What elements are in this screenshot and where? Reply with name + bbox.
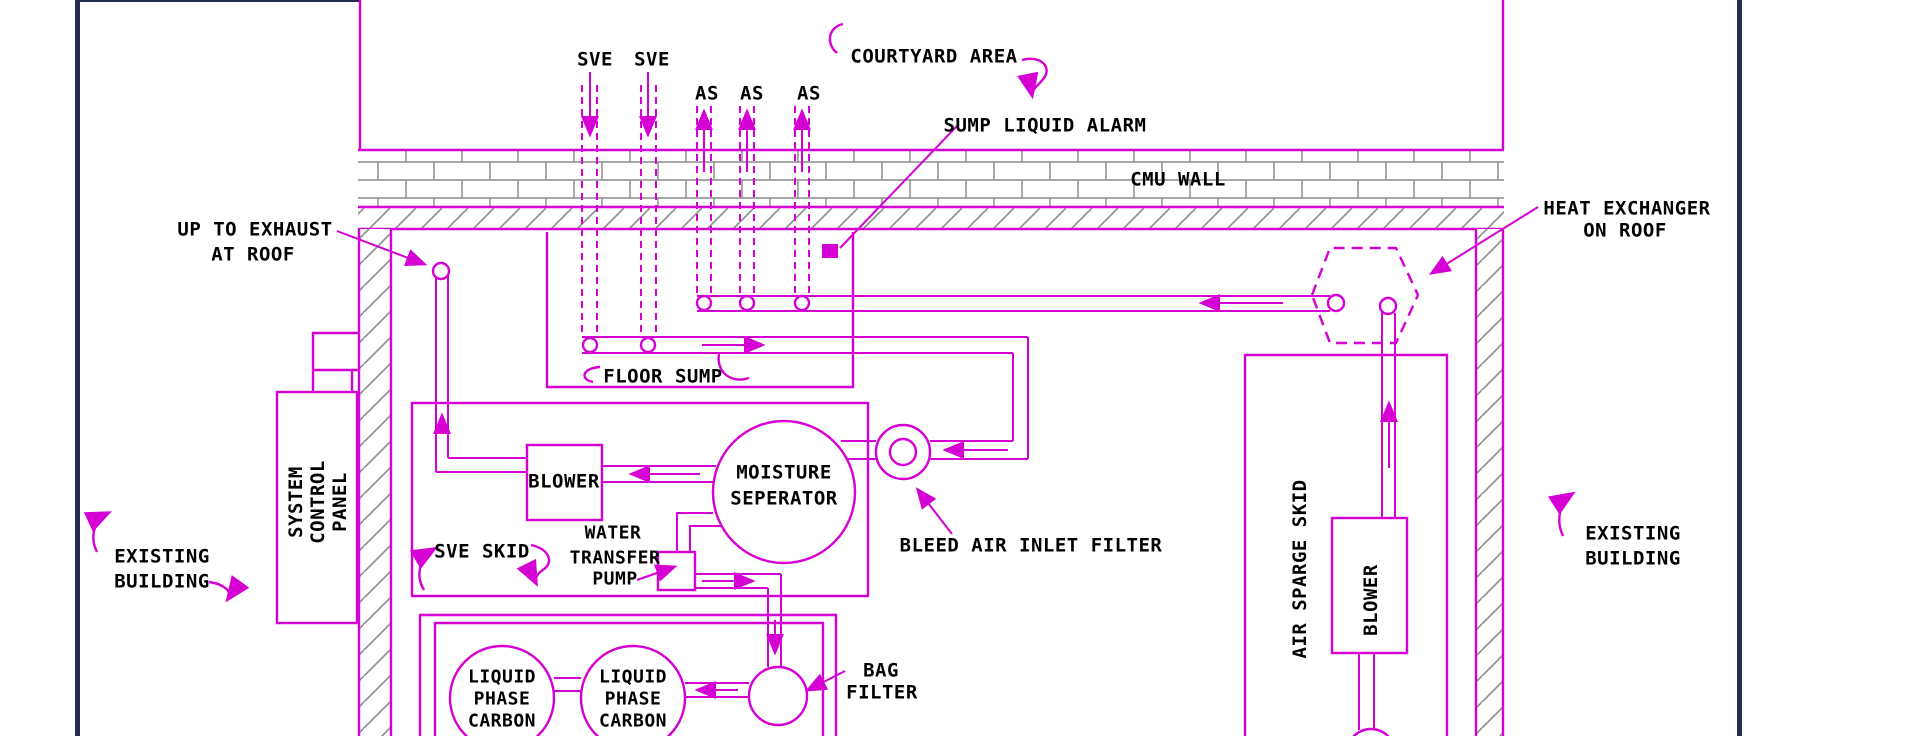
as-port-3 [795,296,809,310]
label-blower-left: BLOWER [528,472,600,493]
squiggle-existing-left [93,513,108,552]
sve-sump-port-1 [583,338,597,352]
label-up-exhaust-1: UP TO EXHAUST [177,220,332,241]
squiggle-sve-skid-right [531,545,549,583]
cmu-brick-band [358,151,1504,206]
label-sump-liquid-alarm: SUMP LIQUID ALARM [944,116,1147,137]
label-existing-building-left-2: BUILDING [114,572,210,593]
label-transfer: TRANSFER [570,548,661,569]
label-carbon-right-3: CARBON [599,711,667,732]
right-page-border [1737,0,1742,736]
label-pump: PUMP [592,569,637,590]
as-skid-lower-unit [1347,729,1395,736]
label-water: WATER [585,523,642,544]
label-as-well-1: AS [695,84,719,105]
bag-filter-circle [749,667,807,725]
as-port-2 [740,296,754,310]
label-existing-building-left-1: EXISTING [114,547,210,568]
bleed-air-filter-inner [890,439,916,465]
label-system-control-panel: SYSTEMCONTROLPANEL [285,460,351,544]
label-air-sparge-skid: AIR SPARGE SKID [1289,479,1311,658]
label-sve-well-2: SVE [634,50,670,71]
squiggle-floor-sump-left [585,367,600,382]
label-sve-skid: SVE SKID [434,542,530,563]
label-existing-building-right-2: BUILDING [1585,549,1681,570]
label-sve-well-1: SVE [577,50,613,71]
right-wall-hatch [1477,229,1502,736]
label-carbon-left-3: CARBON [468,711,536,732]
label-system: SYSTEM [285,466,307,538]
bleed-filter-leader [918,490,952,534]
label-heat-exchanger-2: ON ROOF [1583,221,1667,242]
label-bleed-air-inlet-filter: BLEED AIR INLET FILTER [900,536,1163,557]
label-panel: PANEL [329,472,351,532]
equipment [277,232,1447,736]
label-control: CONTROL [307,460,329,544]
pump-discharge-pipe [695,574,781,667]
label-blower-right: BLOWER [1360,564,1382,636]
left-page-border [75,0,80,736]
as-port-1 [697,296,711,310]
label-courtyard-area: COURTYARD AREA [850,47,1017,68]
squiggle-courtyard-left [830,24,843,53]
label-carbon-left-2: PHASE [474,689,531,710]
label-up-exhaust-2: AT ROOF [211,245,295,266]
exhaust-pipe [436,271,527,472]
label-moisture-1: MOISTURE [736,463,832,484]
pump-suction-pipe [677,513,722,552]
squiggle-existing-right [1559,494,1572,536]
label-existing-building-right-1: EXISTING [1585,524,1681,545]
bag-filter-leader [808,671,845,690]
label-bag: BAG [863,661,899,682]
top-page-border [77,0,361,2]
label-bag-filter: FILTER [846,683,918,704]
label-cmu-wall: CMU WALL [1130,170,1226,191]
squiggle-floor-sump-right [719,354,749,380]
label-as-well-2: AS [740,84,764,105]
label-as-well-3: AS [797,84,821,105]
cmu-hatch-band [358,208,1504,228]
label-heat-exchanger-1: HEAT EXCHANGER [1543,199,1710,220]
label-carbon-left-1: LIQUID [468,667,536,688]
label-carbon-right-2: PHASE [605,689,662,710]
label-carbon-right-1: LIQUID [599,667,667,688]
panel-wall-connector [313,333,358,392]
drawing-canvas [0,0,1920,736]
squiggle-courtyard-right [1022,59,1047,95]
left-wall-hatch [360,229,390,736]
label-floor-sump: FLOOR SUMP [603,367,722,388]
sump-alarm-symbol [822,244,838,258]
squiggle-sve-skid-left [419,549,434,590]
exhaust-riser-circle [433,263,449,279]
as-header-pipe [697,296,1330,311]
hex-inlet-port [1328,295,1344,311]
squiggle-existing-left-2 [209,582,229,599]
drawing-page: SVE SVE AS AS AS COURTYARD AREA SUMP LIQ… [0,0,1920,736]
sve-sump-port-2 [641,338,655,352]
hex-outlet-port [1380,298,1396,314]
separator-to-blower-pipe [602,466,716,482]
label-moisture-2: SEPERATOR [730,489,837,510]
